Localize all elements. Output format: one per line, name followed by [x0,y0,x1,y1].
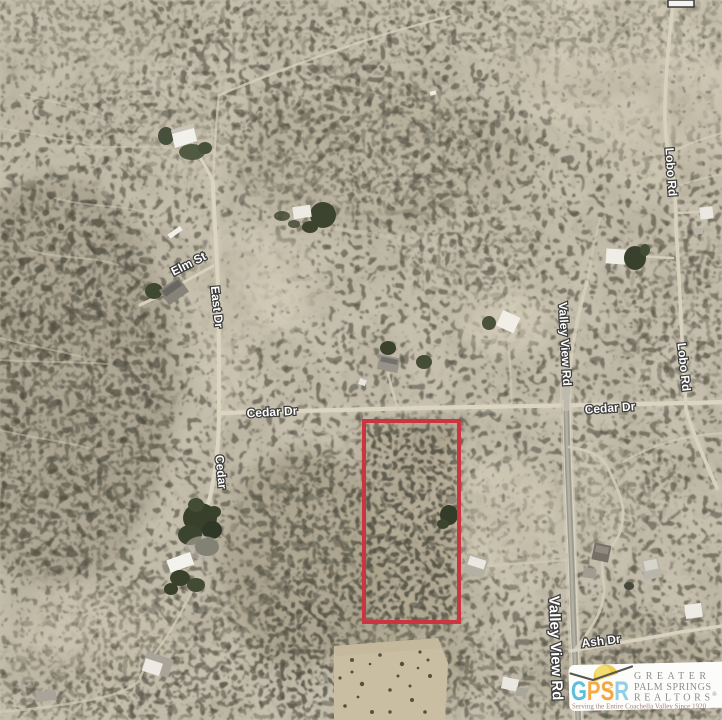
svg-text:Serving the Entire Coachella V: Serving the Entire Coachella Valley Sinc… [572,704,707,711]
svg-text:GPSR: GPSR [571,676,629,706]
svg-text:Cedar Dr: Cedar Dr [246,404,298,421]
svg-text:PALM SPRINGS: PALM SPRINGS [634,682,711,693]
svg-text:®: ® [712,691,717,698]
